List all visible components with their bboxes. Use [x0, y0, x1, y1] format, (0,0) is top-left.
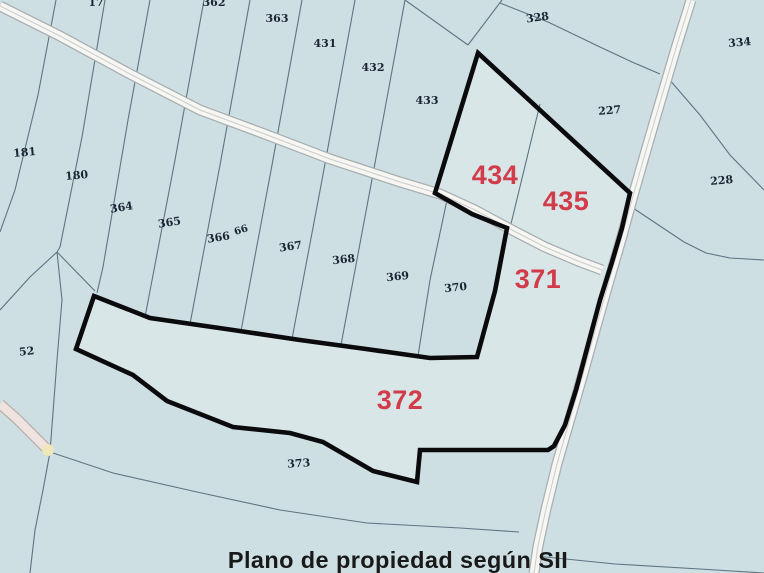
side-road-tip — [42, 444, 54, 456]
parcel-label-181: 181 — [13, 145, 37, 160]
parcel-label-227: 227 — [598, 103, 622, 118]
map-background — [0, 0, 764, 573]
parcel-label-433: 433 — [416, 94, 439, 107]
parcel-label-362-partial: 362 — [203, 0, 226, 9]
parcel-label-432: 432 — [362, 61, 385, 74]
cadastral-map-screenshot: 1811803643653666636736836937036343143243… — [0, 0, 764, 573]
parcel-label-52: 52 — [18, 344, 35, 359]
parcel-label-373: 373 — [287, 456, 311, 471]
parcel-label-431: 431 — [314, 37, 337, 50]
highlight-parcel-label-372: 372 — [377, 385, 424, 415]
highlight-parcel-label-434: 434 — [472, 160, 519, 190]
map-caption: Plano de propiedad según SII — [228, 547, 568, 573]
parcel-label-180: 180 — [65, 168, 89, 183]
parcel-label-228: 228 — [710, 173, 734, 188]
parcel-label-17-partial: 17 — [88, 0, 103, 9]
highlight-parcel-label-435: 435 — [543, 186, 590, 216]
highlight-parcel-label-371: 371 — [515, 264, 562, 294]
parcel-label-334: 334 — [728, 35, 752, 50]
cadastral-map: 1811803643653666636736836937036343143243… — [0, 0, 764, 573]
parcel-label-368: 368 — [332, 252, 357, 267]
parcel-label-363: 363 — [266, 12, 289, 25]
parcel-label-370: 370 — [444, 280, 469, 295]
parcel-label-369: 369 — [386, 269, 410, 284]
